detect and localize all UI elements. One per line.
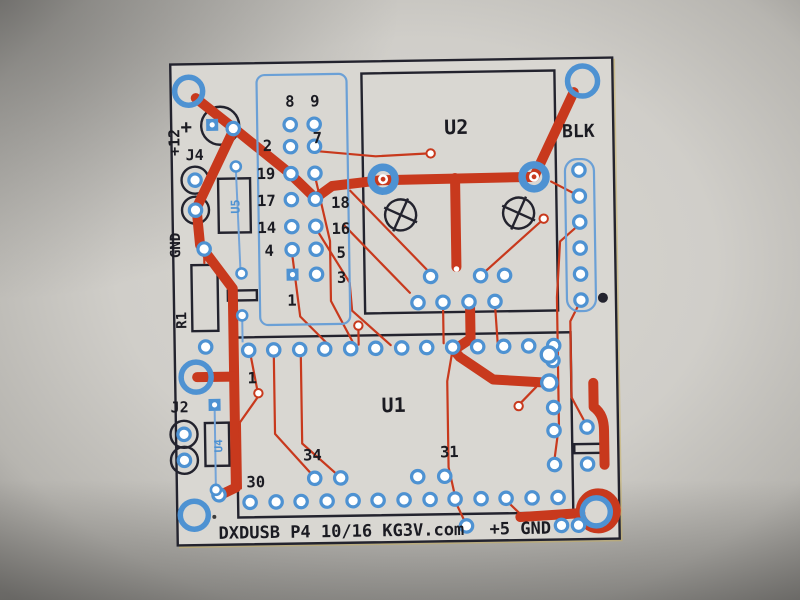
u2-label: U2 [444,115,468,139]
header-pin-label: 14 [257,219,276,237]
u1-pin-label: 34 [303,446,322,464]
pad [227,122,240,135]
pad [548,458,561,471]
header-pin-label: 5 [336,244,346,262]
pad [309,193,322,206]
pad [489,295,502,308]
pad [552,491,565,504]
pad [254,389,263,398]
pad [369,342,382,355]
u1-pin-label: 30 [246,473,265,491]
pad [267,344,280,357]
pcb-layout-photo: + +12 J4 GND U5 R1 J2 U4 8 9 2 7 19 17 1… [0,0,800,600]
pad [244,496,257,509]
pad [542,375,557,390]
pad [463,296,476,309]
pad [308,472,321,485]
pad [475,492,488,505]
pad [474,269,487,282]
header-pin-label: 7 [313,129,323,147]
pad [231,161,241,171]
pad [398,494,411,507]
pad [500,492,513,505]
pad [420,341,433,354]
pad [237,310,247,320]
pad [548,424,561,437]
pad [581,458,594,471]
pad [539,214,548,223]
pad [310,243,323,256]
pad [555,519,568,532]
pad [242,344,255,357]
pad [581,421,594,434]
pad [295,495,308,508]
pad [178,428,191,441]
pad [449,493,462,506]
r1-label: R1 [174,312,190,329]
pad [541,347,556,362]
plus12-label: +12 [165,129,183,156]
header-pin-label: 17 [257,192,276,210]
pad [411,470,424,483]
pad [189,174,202,187]
pad [344,342,357,355]
pad [293,343,306,356]
header-pin-label: 16 [331,220,350,238]
gnd-left-label: GND [168,233,184,259]
pad [573,164,586,177]
blk-label: BLK [562,121,595,143]
ground-trace [197,377,233,378]
pad [189,204,202,217]
pad [574,268,587,281]
header-pin-label: 1 [287,292,297,310]
pad [211,485,221,495]
pad [574,242,587,255]
pad [285,220,298,233]
pad [526,492,539,505]
pad [424,270,437,283]
pad [309,220,322,233]
pad [514,402,523,411]
pad [198,243,211,256]
pad [236,268,246,278]
pad [284,140,297,153]
pad [446,341,459,354]
pad [395,342,408,355]
pad [321,495,334,508]
u1-pin-label: 1 [247,369,257,387]
pad [199,341,212,354]
header-pin-label: 8 [285,93,295,111]
pad [372,494,385,507]
pad [285,167,298,180]
pad [178,454,191,467]
pad [354,321,363,330]
power-trace [455,178,456,267]
header-pin-label: 18 [331,194,350,212]
pad [412,296,425,309]
pad [318,343,331,356]
pad [309,167,322,180]
pad [424,493,437,506]
pad [573,216,586,229]
header-pin-label: 3 [337,269,347,287]
pad [426,149,435,158]
pcb-layout-drawing: + +12 J4 GND U5 R1 J2 U4 8 9 2 7 19 17 1… [0,0,800,600]
pad [573,190,586,203]
board-title: DXDUSB P4 10/16 KG3V.com [218,520,464,544]
pad [547,401,560,414]
pad [498,269,511,282]
header-pin-label: 9 [310,92,320,110]
u1-label: U1 [381,393,405,417]
pad [497,340,510,353]
pad [471,340,484,353]
header-pin-label: 19 [256,165,275,183]
plus5-gnd-label: +5 GND [489,519,551,540]
pcb-board: + +12 J4 GND U5 R1 J2 U4 8 9 2 7 19 17 1… [164,58,622,548]
j2-label: J2 [170,398,188,416]
u1-pin-label: 31 [440,443,459,461]
j4-label: J4 [185,146,203,164]
u4-label: U4 [212,439,225,453]
ground-trace [520,513,580,517]
pad [437,296,450,309]
pad [286,243,299,256]
pad [347,494,360,507]
pad [310,268,323,281]
header-pin-label: 4 [264,242,274,260]
pad [522,340,535,353]
pad [334,472,347,485]
pad [284,118,297,131]
pad [575,294,588,307]
u5-label: U5 [228,199,242,214]
pad [285,193,298,206]
pad [438,470,451,483]
header-pin-label: 2 [263,137,273,155]
pad [270,496,283,509]
